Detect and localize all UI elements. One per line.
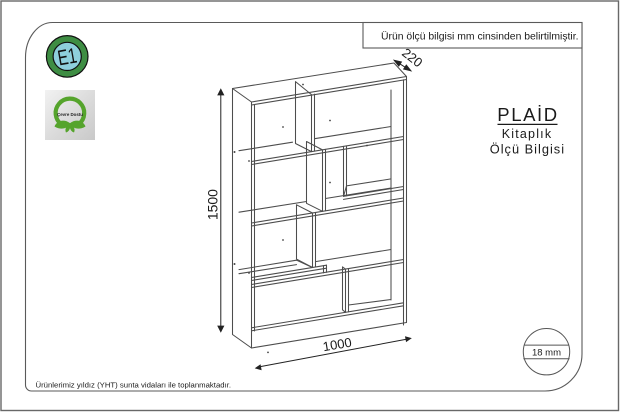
svg-text:Çevre Dostu: Çevre Dostu bbox=[57, 112, 83, 117]
svg-text:Ürün ölçü bilgisi mm cinsinden: Ürün ölçü bilgisi mm cinsinden belirtilm… bbox=[381, 30, 578, 42]
svg-text:18 mm: 18 mm bbox=[532, 347, 561, 358]
svg-text:PLAİD: PLAİD bbox=[497, 104, 558, 125]
svg-text:Ürünlerimiz yıldız (YHT) sunta: Ürünlerimiz yıldız (YHT) sunta vidaları … bbox=[36, 381, 232, 390]
svg-text:Ölçü Bilgisi: Ölçü Bilgisi bbox=[490, 141, 565, 156]
svg-text:1500: 1500 bbox=[205, 189, 221, 220]
svg-text:Kitaplık: Kitaplık bbox=[502, 127, 553, 141]
svg-text:1000: 1000 bbox=[322, 335, 353, 355]
